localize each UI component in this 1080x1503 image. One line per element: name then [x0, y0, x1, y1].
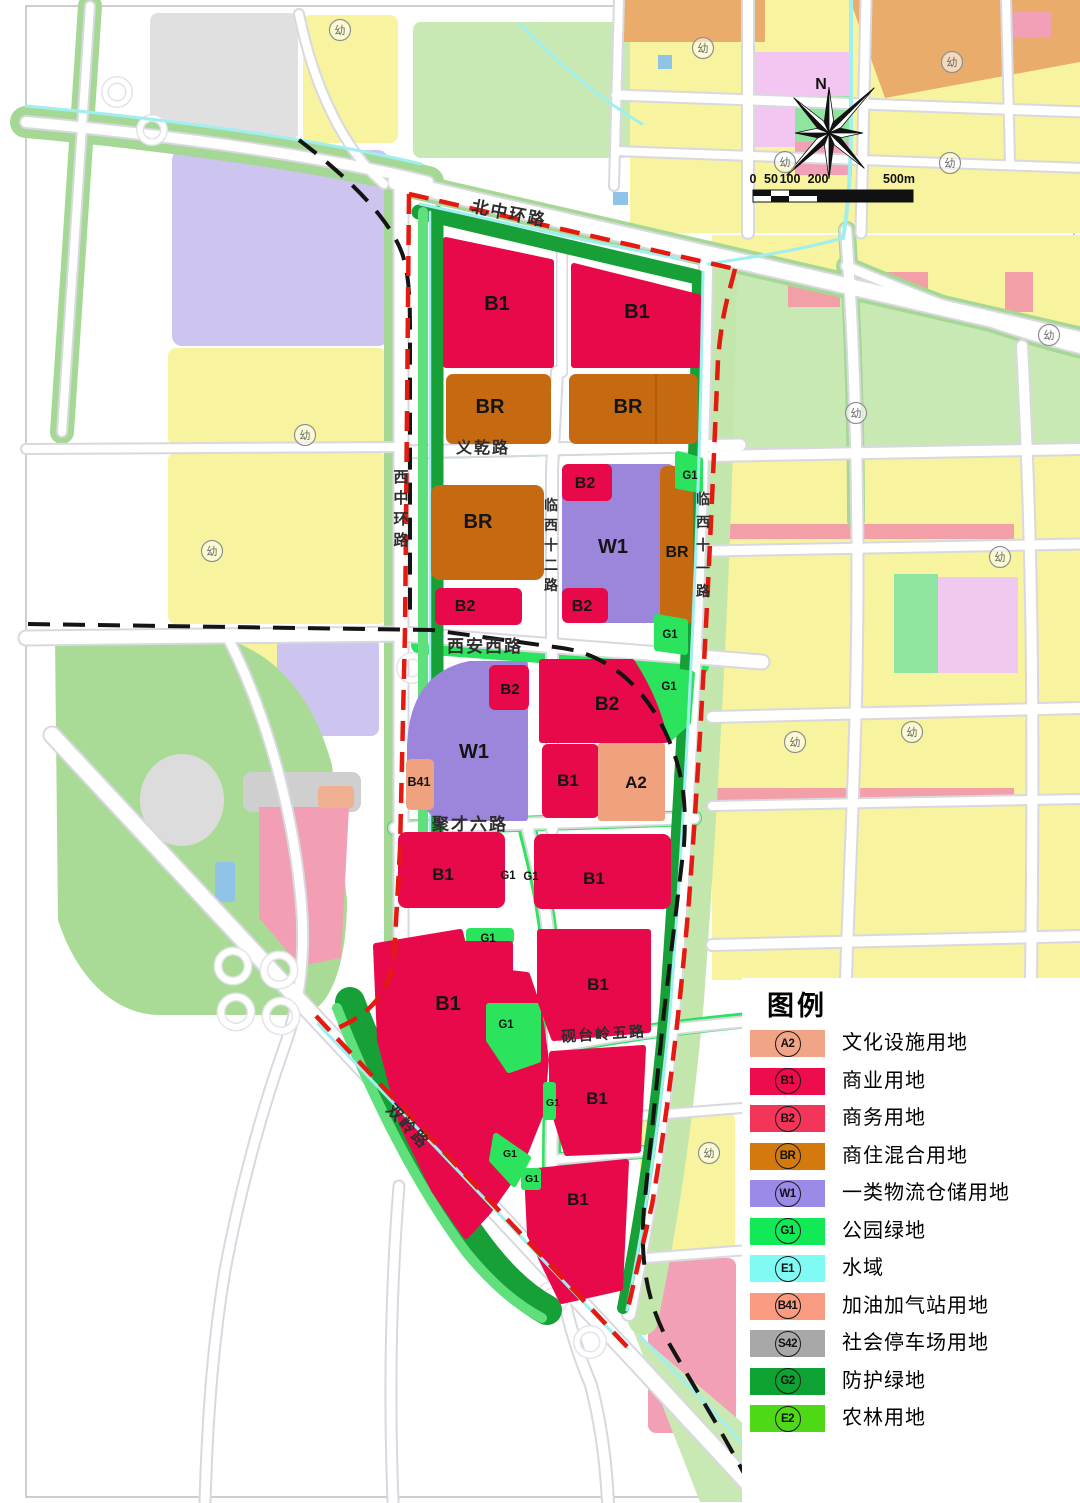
- kindergarten-badge: 幼: [940, 153, 961, 174]
- legend-row: G2防护绿地: [742, 1368, 1080, 1395]
- svg-text:幼: 幼: [698, 42, 709, 55]
- legend-code: B41: [775, 1293, 801, 1319]
- zone-label: W1: [598, 536, 628, 558]
- planning-map-page: N 0 50 100 200 500m B1B1BRBRBRB2W1BRB2B2…: [0, 0, 1080, 1503]
- legend-label: 商务用地: [842, 1105, 926, 1132]
- kindergarten-badge: 幼: [990, 547, 1011, 568]
- legend-code: BR: [775, 1143, 801, 1169]
- zone-label: G1: [661, 681, 677, 693]
- zone-label: B1: [586, 1089, 608, 1108]
- zone-label: B41: [408, 775, 431, 789]
- legend-row: E1水域: [742, 1255, 1080, 1282]
- legend-label: 商业用地: [842, 1068, 926, 1095]
- legend-label: 商住混合用地: [842, 1143, 968, 1170]
- legend-code: G2: [775, 1368, 801, 1394]
- zone-label: W1: [459, 741, 489, 763]
- legend-row: G1公园绿地: [742, 1218, 1080, 1245]
- road-label: 聚才六路: [431, 814, 508, 834]
- legend-row: W1一类物流仓储用地: [742, 1180, 1080, 1207]
- kindergarten-badge: 幼: [202, 541, 223, 562]
- kindergarten-badge: 幼: [785, 732, 806, 753]
- zone-label: B1: [567, 1190, 589, 1209]
- svg-text:幼: 幼: [907, 726, 918, 739]
- zone-label: BR: [464, 511, 493, 533]
- legend-code: E1: [775, 1256, 801, 1282]
- legend-label: 文化设施用地: [842, 1030, 968, 1057]
- zone-label: B2: [500, 681, 519, 698]
- legend-label: 一类物流仓储用地: [842, 1180, 1010, 1207]
- legend-swatch: E2: [750, 1405, 825, 1432]
- legend-swatch: G1: [750, 1218, 825, 1245]
- legend-swatch: S42: [750, 1330, 825, 1357]
- svg-text:幼: 幼: [851, 407, 862, 420]
- legend-row: B1商业用地: [742, 1068, 1080, 1095]
- legend-code: B2: [775, 1106, 801, 1132]
- legend-swatch: B1: [750, 1068, 825, 1095]
- road-label: 西安西路: [447, 636, 523, 656]
- legend-code: B1: [775, 1068, 801, 1094]
- svg-text:幼: 幼: [300, 429, 311, 442]
- scale-tick: 50: [764, 172, 778, 186]
- zone-label: G1: [523, 871, 539, 883]
- zone-label: A2: [625, 773, 647, 792]
- zone-label: BR: [476, 396, 505, 418]
- legend-row: BR商住混合用地: [742, 1143, 1080, 1170]
- svg-text:幼: 幼: [1044, 329, 1055, 342]
- kindergarten-badge: 幼: [902, 722, 923, 743]
- svg-text:幼: 幼: [945, 157, 956, 170]
- zone-label: B1: [557, 771, 579, 790]
- kindergarten-badge: 幼: [775, 152, 796, 173]
- zone-label: B2: [455, 598, 476, 615]
- legend-label: 加油加气站用地: [842, 1293, 989, 1320]
- svg-text:幼: 幼: [704, 1147, 715, 1160]
- legend-code: A2: [775, 1031, 801, 1057]
- kindergarten-badge: 幼: [330, 20, 351, 41]
- zone-label: BR: [614, 396, 643, 418]
- svg-text:幼: 幼: [335, 24, 346, 37]
- zone-label: G1: [500, 870, 516, 882]
- zone-label: G1: [480, 933, 496, 945]
- legend-label: 防护绿地: [842, 1368, 926, 1395]
- legend-panel: 图例 A2文化设施用地B1商业用地B2商务用地BR商住混合用地W1一类物流仓储用…: [742, 978, 1080, 1503]
- legend-code: S42: [775, 1331, 801, 1357]
- svg-text:幼: 幼: [995, 551, 1006, 564]
- scale-bar-segments: [753, 190, 913, 202]
- legend-code: E2: [775, 1406, 801, 1432]
- north-label: N: [815, 76, 827, 93]
- scale-tick: 200: [808, 172, 829, 186]
- legend-code: W1: [775, 1181, 801, 1207]
- legend-swatch: B41: [750, 1293, 825, 1320]
- kindergarten-badge: 幼: [846, 403, 867, 424]
- legend-swatch: BR: [750, 1143, 825, 1170]
- zone-label: G1: [662, 629, 678, 641]
- legend-label: 农林用地: [842, 1405, 926, 1432]
- zone-label: G1: [546, 1097, 560, 1109]
- zone-label: B1: [484, 293, 510, 315]
- legend-row: B41加油加气站用地: [742, 1293, 1080, 1320]
- zone-label: G1: [498, 1019, 514, 1031]
- kindergarten-badge: 幼: [295, 425, 316, 446]
- zone-label: B1: [432, 865, 454, 884]
- zone-label: B1: [435, 993, 461, 1015]
- legend-swatch: W1: [750, 1180, 825, 1207]
- legend-label: 社会停车场用地: [842, 1330, 989, 1357]
- svg-text:幼: 幼: [780, 156, 791, 169]
- legend-row: E2农林用地: [742, 1405, 1080, 1432]
- legend-swatch: E1: [750, 1255, 825, 1282]
- kindergarten-badge: 幼: [699, 1143, 720, 1164]
- legend-swatch: G2: [750, 1368, 825, 1395]
- scale-end-label: 500m: [883, 172, 915, 186]
- svg-text:幼: 幼: [947, 56, 958, 69]
- zone-label: B2: [595, 694, 619, 715]
- kindergarten-badge: 幼: [942, 52, 963, 73]
- zone-label: B1: [583, 869, 605, 888]
- legend-swatch: A2: [750, 1030, 825, 1057]
- scale-tick: 100: [780, 172, 801, 186]
- zone-label: B1: [587, 975, 609, 994]
- legend-row: S42社会停车场用地: [742, 1330, 1080, 1357]
- zone-label: BR: [665, 544, 689, 561]
- legend-row: B2商务用地: [742, 1105, 1080, 1132]
- legend-swatch: B2: [750, 1105, 825, 1132]
- zone-label: B2: [575, 475, 596, 492]
- road-label: 临西十二路: [544, 497, 560, 593]
- zone-label: G1: [682, 470, 698, 482]
- legend-row: A2文化设施用地: [742, 1030, 1080, 1057]
- scale-tick: 0: [750, 172, 757, 186]
- legend-label: 水域: [842, 1255, 884, 1282]
- kindergarten-badge: 幼: [1039, 325, 1060, 346]
- zone-label: B1: [624, 301, 650, 323]
- zone-label: G1: [503, 1148, 517, 1160]
- legend-title: 图例: [767, 984, 827, 1023]
- svg-text:幼: 幼: [790, 736, 801, 749]
- legend-label: 公园绿地: [842, 1218, 926, 1245]
- road-label: 义乾路: [456, 438, 510, 457]
- kindergarten-badge: 幼: [693, 38, 714, 59]
- legend-code: G1: [775, 1218, 801, 1244]
- svg-text:幼: 幼: [207, 545, 218, 558]
- zone-label: B2: [572, 598, 593, 615]
- zone-label: G1: [525, 1173, 539, 1185]
